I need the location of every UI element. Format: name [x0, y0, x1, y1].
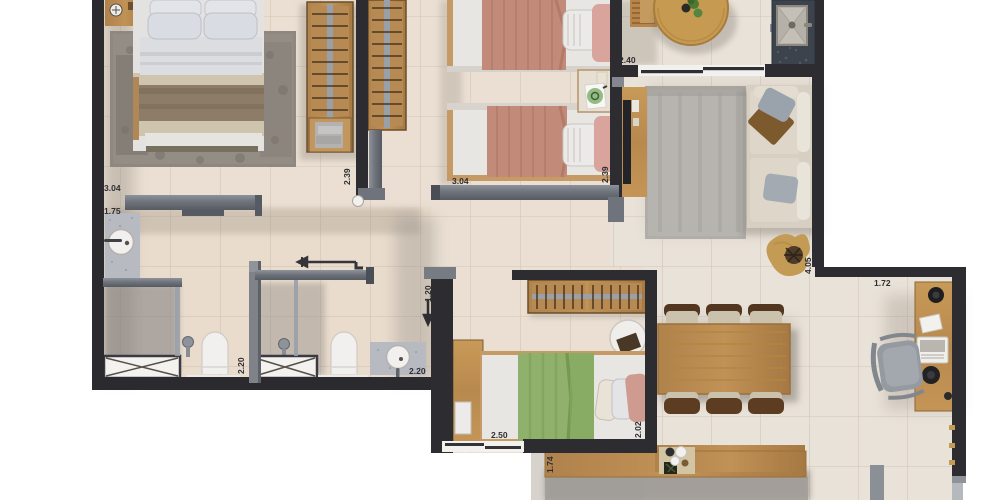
svg-text:1.75: 1.75: [104, 206, 121, 216]
svg-text:2.39: 2.39: [342, 168, 352, 185]
svg-text:1.74: 1.74: [545, 456, 555, 473]
svg-text:2.50: 2.50: [491, 430, 508, 440]
svg-text:2.40: 2.40: [619, 55, 636, 65]
svg-text:2.39: 2.39: [600, 166, 610, 183]
svg-text:2.02: 2.02: [633, 421, 643, 438]
svg-text:1.20: 1.20: [423, 285, 433, 302]
svg-text:4.05: 4.05: [803, 257, 813, 274]
svg-text:2.20: 2.20: [409, 366, 426, 376]
svg-text:2.20: 2.20: [236, 357, 246, 374]
svg-text:3.04: 3.04: [452, 176, 469, 186]
svg-text:1.72: 1.72: [874, 278, 891, 288]
svg-text:3.04: 3.04: [104, 183, 121, 193]
